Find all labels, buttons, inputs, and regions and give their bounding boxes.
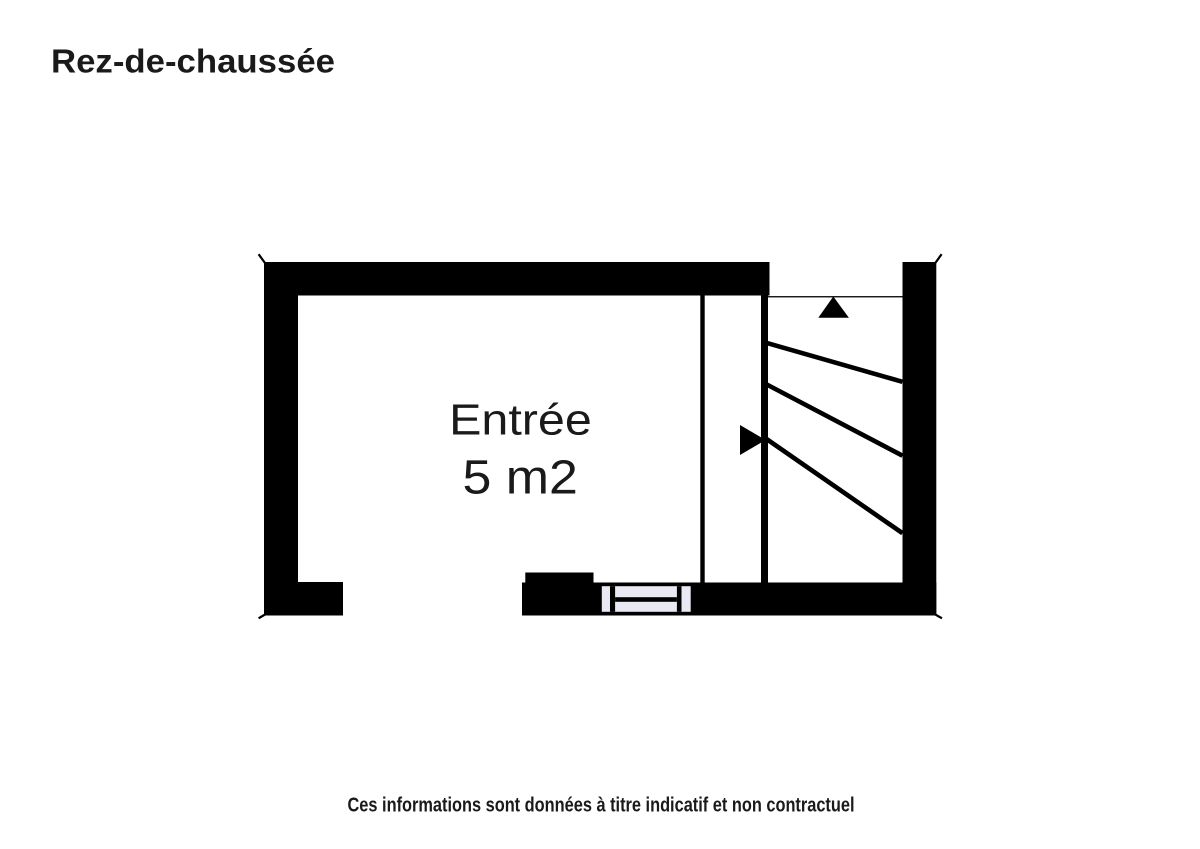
svg-text:Rez-de-chaussée: Rez-de-chaussée [51,44,335,81]
svg-text:5 m2: 5 m2 [463,451,578,505]
svg-text:Ces informations sont données: Ces informations sont données à titre in… [348,795,855,817]
svg-text:Entrée: Entrée [449,395,592,444]
